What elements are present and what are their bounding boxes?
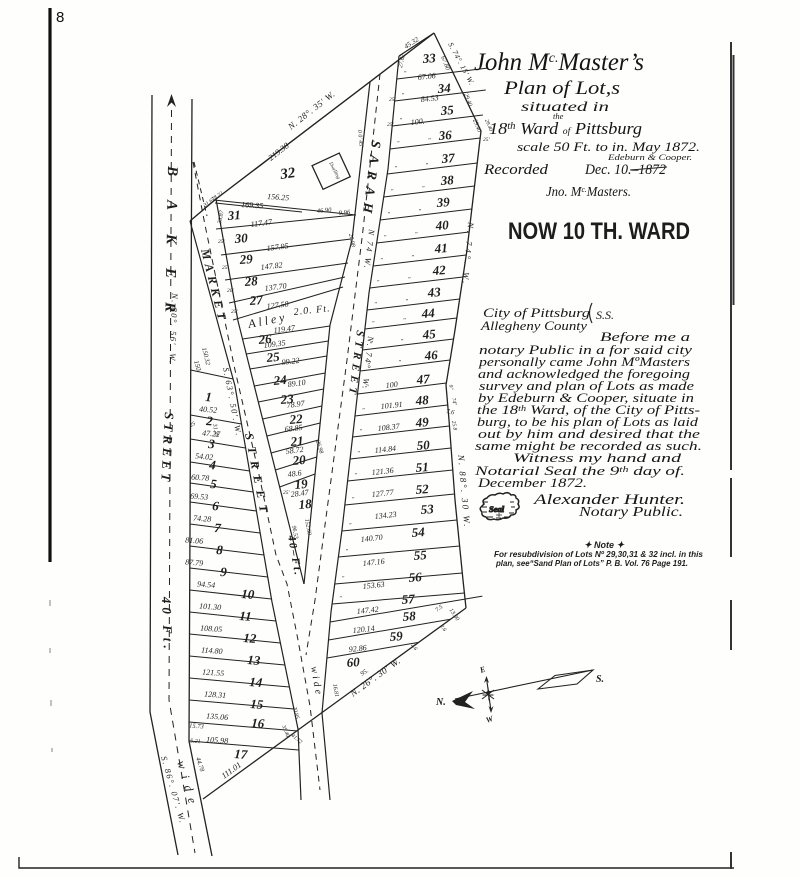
svg-text:59: 59: [389, 628, 404, 644]
svg-text:25′: 25′: [218, 239, 226, 245]
svg-text:18th Ward of Pittsburg: 18th Ward of Pittsburg: [489, 119, 642, 138]
svg-text:″: ″: [384, 235, 387, 241]
svg-text:140.70: 140.70: [360, 533, 383, 544]
svg-text:53: 53: [420, 501, 435, 517]
svg-text:32: 32: [278, 165, 297, 183]
svg-text:N 74 W.: N 74 W.: [362, 228, 377, 271]
svg-text:N. 88°. 30 W.: N. 88°. 30 W.: [456, 453, 472, 528]
svg-text:74″: 74″: [450, 397, 458, 407]
svg-text:W: W: [485, 714, 496, 725]
svg-text:″: ″: [418, 208, 421, 215]
svg-text:47: 47: [415, 371, 431, 387]
svg-text:Allegheny County: Allegheny County: [480, 318, 587, 333]
svg-text:101.91: 101.91: [380, 400, 403, 411]
svg-text:81.06: 81.06: [185, 536, 204, 546]
svg-text:37: 37: [440, 150, 456, 166]
svg-text:NOW 10 TH. WARD: NOW 10 TH. WARD: [508, 218, 690, 245]
svg-text:44: 44: [420, 305, 436, 321]
svg-text:101.30: 101.30: [199, 602, 222, 613]
svg-text:11: 11: [239, 608, 252, 624]
svg-text:25: 25: [265, 349, 281, 365]
svg-text:52: 52: [415, 481, 430, 497]
svg-text:94.54: 94.54: [197, 580, 216, 590]
svg-text:105.98: 105.98: [206, 735, 229, 746]
svg-text:89.10: 89.10: [287, 378, 306, 389]
svg-text:7.6: 7.6: [446, 408, 456, 416]
svg-text:″: ″: [339, 596, 342, 602]
svg-text:69.53: 69.53: [190, 492, 209, 502]
svg-text:Dwelling: Dwelling: [327, 161, 340, 181]
svg-text:74.28: 74.28: [193, 514, 212, 524]
svg-text:5.21: 5.21: [190, 739, 201, 746]
svg-text:45: 45: [421, 326, 437, 342]
svg-text:38: 38: [439, 172, 455, 188]
svg-text:7: 7: [214, 520, 222, 535]
svg-text:41: 41: [433, 240, 448, 256]
svg-text:20.85: 20.85: [291, 706, 300, 720]
svg-text:40: 40: [434, 217, 450, 233]
svg-text:wide: wide: [308, 666, 324, 698]
svg-text:25′: 25′: [231, 309, 239, 315]
svg-text:117.47: 117.47: [250, 217, 273, 229]
svg-text:78.97: 78.97: [286, 399, 306, 410]
svg-text:2.6: 2.6: [438, 624, 447, 633]
svg-text:39: 39: [435, 194, 451, 210]
svg-text:15: 15: [250, 696, 265, 712]
svg-text:114.80: 114.80: [201, 646, 223, 656]
svg-text:″: ″: [403, 317, 406, 324]
svg-text:25: 25: [189, 421, 197, 429]
svg-text:99.22: 99.22: [281, 356, 300, 367]
svg-text:67.06: 67.06: [417, 71, 436, 82]
svg-text:″: ″: [394, 166, 397, 172]
svg-text:127.77: 127.77: [371, 488, 395, 499]
svg-text:SARAH: SARAH: [359, 140, 384, 221]
svg-text:Edeburn & Cooper.: Edeburn & Cooper.: [607, 152, 692, 162]
svg-text:″: ″: [401, 338, 404, 345]
svg-text:STREET: STREET: [242, 432, 272, 520]
svg-text:15.73: 15.73: [189, 723, 205, 731]
svg-text:58: 58: [402, 608, 417, 624]
svg-text:17: 17: [234, 746, 249, 762]
svg-text:51: 51: [415, 459, 429, 475]
svg-text:14: 14: [249, 674, 264, 690]
svg-text:Dec. 10.–1872: Dec. 10.–1872: [584, 162, 666, 178]
svg-text:92.86: 92.86: [348, 643, 367, 654]
svg-text:128.31: 128.31: [204, 690, 227, 701]
svg-text:46: 46: [423, 347, 439, 363]
svg-text:28: 28: [243, 273, 259, 289]
svg-text:Recorded: Recorded: [483, 162, 549, 178]
svg-text:84.53: 84.53: [420, 93, 439, 104]
svg-text:2.0. Ft.: 2.0. Ft.: [293, 303, 331, 318]
svg-text:29.40: 29.40: [462, 92, 474, 107]
svg-text:1: 1: [205, 389, 213, 404]
svg-text:″: ″: [402, 93, 405, 99]
svg-text:13: 13: [247, 652, 262, 668]
svg-text:10: 10: [241, 586, 256, 602]
svg-text:″: ″: [374, 302, 377, 308]
svg-text:43: 43: [426, 284, 442, 300]
svg-text:25.8: 25.8: [450, 420, 458, 431]
svg-text:25′: 25′: [283, 490, 291, 496]
svg-text:36: 36: [437, 127, 453, 143]
svg-text:situated in: situated in: [521, 100, 609, 115]
svg-text:100: 100: [385, 380, 398, 390]
svg-text:27: 27: [248, 292, 264, 308]
svg-text:″: ″: [357, 451, 360, 457]
svg-text:N. 28°. 35′ W.: N. 28°. 35′ W.: [285, 89, 337, 132]
svg-text:60.78: 60.78: [191, 473, 210, 483]
svg-text:100.: 100.: [410, 117, 425, 127]
svg-text:35: 35: [439, 102, 455, 118]
svg-text:″: ″: [352, 497, 355, 503]
svg-text:N.: N.: [435, 697, 446, 708]
svg-text:8: 8: [216, 542, 224, 557]
svg-text:20′: 20′: [227, 288, 235, 294]
svg-text:29.40: 29.40: [471, 118, 483, 133]
svg-text:5: 5: [210, 476, 218, 491]
svg-text:E: E: [478, 665, 487, 676]
svg-text:″: ″: [399, 118, 402, 124]
svg-text:″: ″: [345, 549, 348, 555]
svg-text:121.36: 121.36: [371, 466, 394, 477]
svg-text:25′: 25′: [389, 97, 397, 103]
svg-text:219.38: 219.38: [266, 140, 291, 163]
svg-text:31: 31: [226, 207, 241, 223]
svg-text:S. 74°. 15′ W.: S. 74°. 15′ W.: [446, 41, 476, 87]
svg-text:STREET: STREET: [158, 412, 177, 486]
svg-text:Notary Public.: Notary Public.: [578, 504, 683, 519]
svg-text:″: ″: [398, 359, 401, 366]
svg-text:67.80: 67.80: [439, 55, 451, 72]
svg-text:55: 55: [413, 547, 428, 563]
svg-text:″: ″: [405, 298, 408, 305]
svg-text:″: ″: [360, 429, 363, 435]
svg-text:108.05: 108.05: [200, 624, 223, 635]
svg-text:3: 3: [207, 436, 216, 452]
svg-text:29: 29: [238, 251, 254, 267]
svg-text:156.25: 156.25: [267, 192, 290, 203]
svg-text:120.14: 120.14: [352, 624, 375, 635]
svg-text:157.95: 157.95: [266, 241, 289, 253]
svg-text:8: 8: [56, 9, 64, 26]
svg-text:135.06: 135.06: [206, 712, 229, 723]
svg-text:40 Ft.: 40 Ft.: [159, 596, 176, 653]
svg-text:147.82: 147.82: [260, 260, 283, 272]
svg-text:114.84: 114.84: [374, 444, 396, 455]
svg-text:33: 33: [421, 50, 437, 66]
svg-text:″: ″: [391, 189, 394, 195]
svg-text:S.S.: S.S.: [596, 308, 614, 322]
svg-text:134.23: 134.23: [374, 510, 397, 521]
svg-text:46.90: 46.90: [317, 207, 333, 215]
svg-text:″: ″: [428, 137, 431, 144]
svg-text:60: 60: [346, 654, 361, 670]
svg-text:S.: S.: [596, 674, 604, 685]
svg-text:9″: 9″: [447, 384, 454, 391]
svg-text:″: ″: [355, 473, 358, 479]
svg-text:″: ″: [342, 576, 345, 582]
svg-text:″: ″: [362, 408, 365, 414]
svg-text:153.63: 153.63: [362, 580, 385, 591]
svg-text:111.01: 111.01: [219, 760, 243, 781]
svg-text:18: 18: [298, 496, 313, 512]
svg-text:″: ″: [415, 231, 418, 238]
svg-text:169.35: 169.35: [241, 200, 264, 211]
svg-text:0 0′ 45′: 0 0′ 45′: [356, 130, 365, 149]
svg-text:147.16: 147.16: [362, 557, 385, 568]
svg-text:12: 12: [243, 630, 258, 646]
svg-text:″: ″: [408, 276, 411, 283]
svg-text:Seal: Seal: [489, 504, 505, 514]
svg-text:9: 9: [220, 564, 228, 579]
svg-text:48: 48: [414, 392, 430, 408]
svg-text:108.37: 108.37: [377, 422, 401, 433]
svg-text:40–Ft.: 40–Ft.: [285, 533, 304, 577]
svg-text:30: 30: [233, 230, 249, 246]
svg-text:44.78: 44.78: [194, 756, 205, 773]
svg-text:16: 16: [251, 715, 266, 731]
svg-text:″: ″: [380, 258, 383, 264]
svg-text:9.96: 9.96: [339, 209, 352, 217]
svg-text:″: ″: [377, 280, 380, 286]
svg-text:87.79: 87.79: [185, 558, 204, 568]
svg-text:25′: 25′: [222, 265, 230, 271]
svg-text:49: 49: [414, 414, 430, 430]
svg-text:Plan of Lot,s: Plan of Lot,s: [503, 78, 620, 99]
svg-text:25′: 25′: [387, 122, 395, 128]
svg-text:″: ″: [397, 141, 400, 147]
svg-text:121.55: 121.55: [202, 668, 225, 679]
svg-text:50: 50: [416, 437, 431, 453]
svg-text:″: ″: [422, 185, 425, 192]
svg-text:42: 42: [431, 262, 447, 278]
svg-text:plan, see“Sand Plan of Lots” P: plan, see“Sand Plan of Lots” P. B. Vol. …: [495, 558, 688, 568]
svg-text:119.47: 119.47: [273, 323, 296, 335]
svg-text:4: 4: [208, 457, 217, 473]
svg-text:″: ″: [404, 71, 407, 77]
svg-text:John Mc.Master’s: John Mc.Master’s: [474, 49, 644, 76]
svg-text:16.81: 16.81: [331, 683, 339, 697]
svg-text:41.72: 41.72: [290, 732, 304, 745]
svg-text:57: 57: [401, 591, 416, 607]
svg-text:7.5: 7.5: [435, 604, 445, 613]
svg-text:54: 54: [411, 524, 426, 540]
svg-text:″: ″: [387, 212, 390, 218]
svg-text:December 1872.: December 1872.: [477, 475, 587, 490]
svg-text:″: ″: [372, 321, 375, 327]
svg-text:″: ″: [349, 523, 352, 529]
svg-text:6: 6: [212, 498, 220, 513]
svg-text:56: 56: [408, 569, 423, 585]
svg-text:26.98: 26.98: [347, 233, 356, 247]
svg-text:48.6: 48.6: [287, 468, 302, 479]
svg-text:″: ″: [425, 162, 428, 169]
svg-text:34: 34: [436, 80, 452, 96]
svg-text:26.98: 26.98: [314, 440, 324, 455]
svg-text:Jno. Mc.Masters.: Jno. Mc.Masters.: [546, 184, 631, 199]
svg-text:″: ″: [411, 254, 414, 261]
svg-text:MARKET: MARKET: [198, 246, 230, 325]
